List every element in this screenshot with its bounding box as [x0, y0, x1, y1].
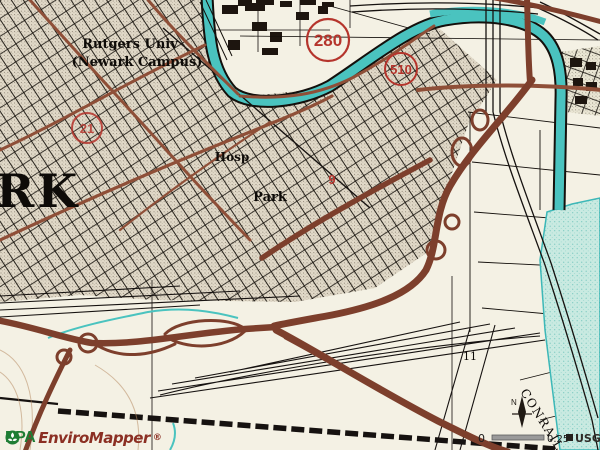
- route-shield-510-number: 510: [390, 62, 412, 77]
- route-shield-21-number: 21: [80, 121, 94, 136]
- city-name-partial: RK: [0, 164, 80, 218]
- route-shield-280-number: 280: [314, 31, 342, 50]
- university-label-line2: (Newark Campus): [72, 55, 203, 70]
- north-arrow-label: N: [511, 398, 517, 407]
- map-canvas[interactable]: 280 510 21 RK Rutgers Univ (Newark Campu…: [0, 0, 600, 450]
- usgs-mark-icon: [566, 434, 573, 441]
- scale-end-label: 0.25: [547, 434, 569, 445]
- point-marker-label: 9: [328, 172, 335, 187]
- scale-start-label: 0: [478, 432, 485, 445]
- enviromapper-window: 280 510 21 RK Rutgers Univ (Newark Campu…: [0, 0, 600, 450]
- hospital-label: Hosp: [215, 150, 250, 164]
- park-label: Park: [253, 190, 288, 205]
- university-label-line1: Rutgers Univ: [82, 37, 178, 52]
- block-number-label: 11: [463, 350, 477, 363]
- registered-trademark-symbol: ®: [153, 434, 162, 443]
- enviromapper-wordmark: EnviroMapper: [38, 431, 150, 446]
- epa-seal-icon: [5, 430, 20, 445]
- epa-enviromapper-logo: EPA EnviroMapper ®: [5, 430, 162, 446]
- attribution-label: USGS: [575, 432, 600, 445]
- scale-bar-rule: [492, 435, 544, 440]
